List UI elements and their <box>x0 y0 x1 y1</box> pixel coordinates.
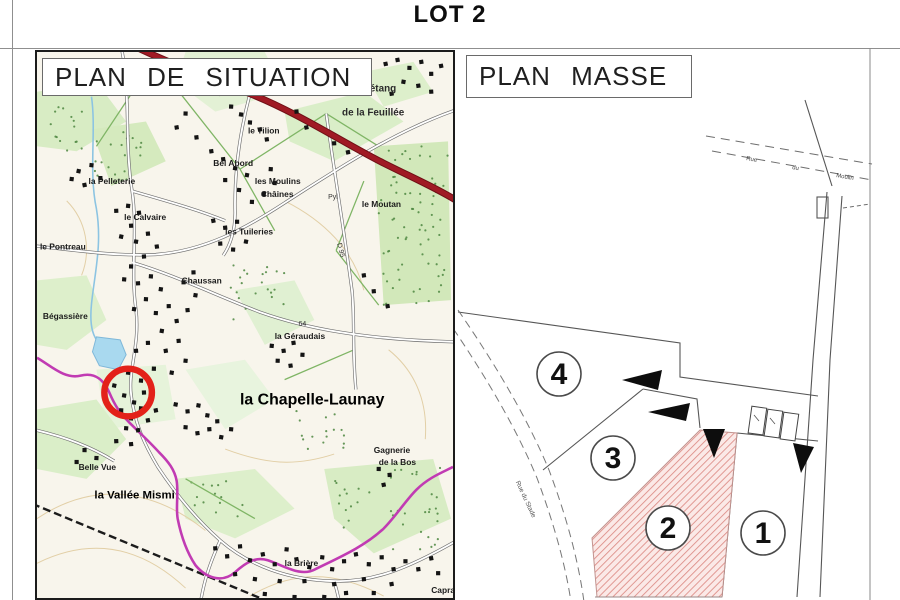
map-label: Chaussan <box>182 275 222 285</box>
topographic-map: le Lattaisétangde la Feuilléele TilionBe… <box>37 52 453 598</box>
map-label: la Pelleterie <box>89 176 136 186</box>
street-name-label: Rue du Stade <box>514 480 537 519</box>
vertical-rule <box>12 0 13 600</box>
map-label: étang <box>370 84 396 95</box>
map-label: de la Bos <box>379 457 417 467</box>
map-label: Gagnerie <box>374 445 411 455</box>
map-label: Châines <box>261 189 294 199</box>
road-name-fragment: du <box>792 165 800 172</box>
map-label: la Géraudais <box>275 331 326 341</box>
situation-header-label: PLAN DE SITUATION <box>55 62 351 93</box>
situation-map-panel: le Lattaisétangde la Feuilléele TilionBe… <box>35 50 455 600</box>
masse-plan-drawing: 1234 RueduMoulinRue du Stade <box>455 48 900 600</box>
lot-number-circles: 1234 <box>537 352 785 555</box>
road-name-fragment: Rue <box>746 156 759 164</box>
access-arrow-lot4-icon <box>622 370 662 390</box>
map-label: la Chapelle-Launay <box>240 391 385 408</box>
road-name-fragment: Moulin <box>836 173 854 182</box>
map-label: le Moutan <box>362 199 401 209</box>
map-label: 64 <box>298 321 306 328</box>
lot-number-4: 4 <box>551 358 568 391</box>
dashed-road-north-edge <box>706 136 872 164</box>
masse-header: PLAN MASSE <box>466 55 692 98</box>
situation-header: PLAN DE SITUATION <box>42 58 372 96</box>
map-label: les Tuileries <box>225 227 273 237</box>
access-arrow-lot3-icon <box>648 403 690 421</box>
lot-number-3: 3 <box>605 442 622 475</box>
lane-east-edge <box>820 196 842 597</box>
map-label: la Brière <box>285 558 319 568</box>
access-arrow-lot1-icon <box>793 443 814 473</box>
map-label: le Pontreau <box>40 242 86 252</box>
masse-header-label: PLAN MASSE <box>479 61 667 92</box>
parking-boxes <box>748 406 799 441</box>
map-label: Belle Vue <box>79 462 117 472</box>
map-label: Pyl <box>328 194 338 201</box>
map-label: Capra <box>431 585 453 595</box>
map-label: Bel Abord <box>213 158 253 168</box>
lot-number-2: 2 <box>660 512 677 545</box>
map-label: le Tilion <box>248 125 280 135</box>
map-label: de la Feuillée <box>342 108 405 119</box>
map-label: les Moulins <box>255 176 301 186</box>
map-label: le Calvaire <box>124 212 166 222</box>
map-label: Bégassière <box>43 311 88 321</box>
page-title: LOT 2 <box>0 1 900 29</box>
lot-number-1: 1 <box>755 517 772 550</box>
map-label: la Vallée Mismi <box>94 490 174 502</box>
